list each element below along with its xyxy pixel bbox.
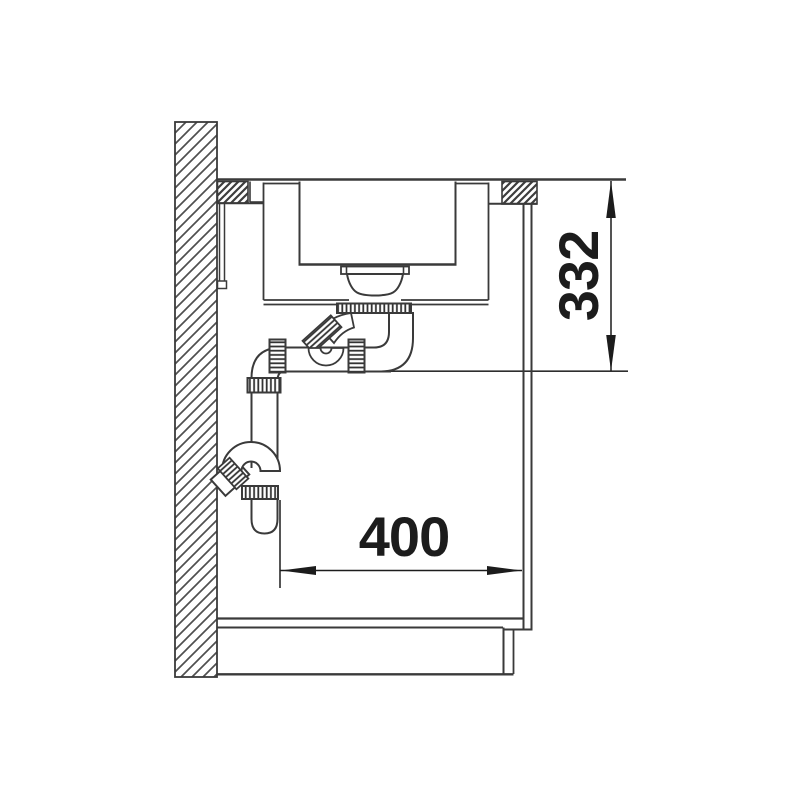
strainer-flange (341, 267, 409, 275)
stub-nut (242, 486, 278, 499)
strainer-locknut (337, 304, 411, 314)
outlet-elbow (362, 313, 413, 372)
strainer-body (347, 274, 403, 296)
union-nut-left (270, 340, 286, 373)
union-nut-center (349, 340, 365, 373)
dimension-label-400: 400 (359, 505, 449, 568)
drain-strainer (341, 267, 409, 296)
arrow-left-icon (281, 566, 316, 575)
countertop-section-left (218, 182, 249, 204)
wall-hatch (175, 122, 217, 677)
sink-section-svg: 332 400 (0, 0, 800, 800)
technical-drawing: 332 400 (0, 0, 800, 800)
dimension-label-332: 332 (547, 231, 610, 321)
arrow-down-icon (606, 335, 616, 371)
arrow-right-icon (487, 566, 522, 575)
wall-rail (218, 204, 227, 289)
arrow-up-icon (606, 181, 616, 218)
vertical-pipe-nut (248, 378, 281, 393)
countertop-section-right (502, 182, 537, 205)
siphon-trap (211, 304, 413, 534)
